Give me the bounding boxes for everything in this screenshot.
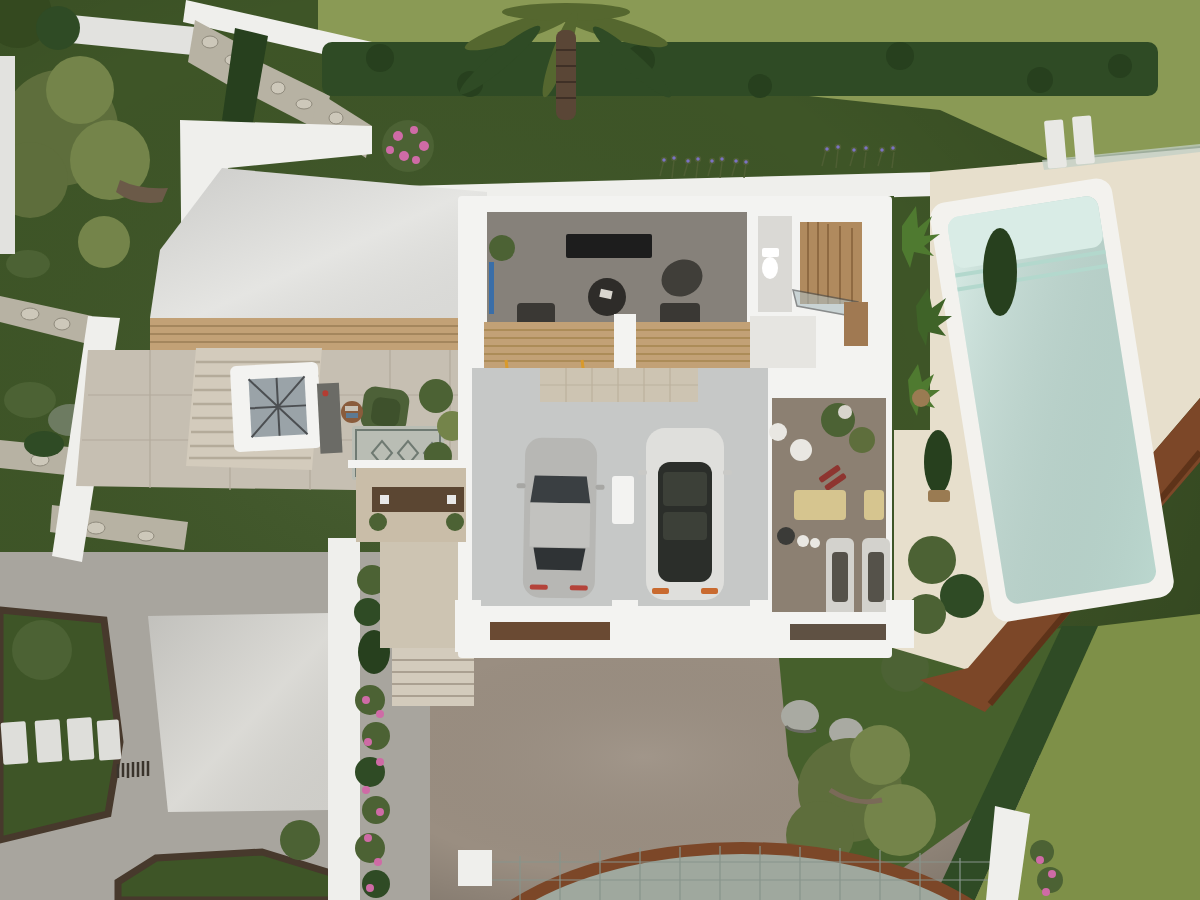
retaining-wall-edge <box>0 56 15 254</box>
garage-door-shadow <box>490 622 610 640</box>
island-bush <box>12 620 72 680</box>
taillight <box>701 588 718 594</box>
pink-flower-bush <box>382 120 434 172</box>
door-pier <box>612 600 638 652</box>
garage <box>455 368 776 652</box>
palm-trunk <box>556 30 576 120</box>
wood-cabinet <box>844 302 868 346</box>
taillight <box>530 584 548 589</box>
side-table <box>341 401 363 423</box>
yoga-mat <box>794 490 846 520</box>
toilet <box>762 248 779 279</box>
white-pot <box>838 405 852 419</box>
kettlebell <box>777 527 795 545</box>
rear-window <box>533 548 585 571</box>
small-ball <box>797 535 809 547</box>
wall-pier <box>614 314 636 370</box>
aerial-villa-render <box>0 0 1200 900</box>
drain-grate <box>118 761 148 778</box>
scene-canvas <box>0 0 1200 900</box>
porch-light <box>380 495 389 504</box>
glass-panel <box>663 512 707 540</box>
plant-pot <box>928 490 950 502</box>
hall-floor <box>750 316 816 368</box>
potted-plant <box>446 513 464 531</box>
potted-plant <box>369 513 387 531</box>
deck-walkway <box>150 318 486 350</box>
cypress-potted <box>924 430 952 494</box>
cypress-tall <box>983 228 1017 316</box>
blue-accent-strip <box>489 262 494 314</box>
shaft-side-panel <box>317 383 343 454</box>
small-ball <box>810 538 820 548</box>
entry-walkway <box>380 538 468 648</box>
side-mirror <box>638 470 647 475</box>
glass-panel <box>663 472 707 506</box>
exercise-ball <box>790 439 812 461</box>
porch-light <box>447 495 456 504</box>
gate-pillar-west <box>458 850 492 886</box>
windshield <box>530 475 590 503</box>
silver-sedan <box>515 437 606 599</box>
gym-opening-shadow <box>790 624 890 640</box>
garage-center-pier <box>612 476 634 524</box>
book <box>346 413 358 418</box>
porch-beam <box>348 460 470 468</box>
side-mirror <box>596 485 605 490</box>
book <box>345 406 358 411</box>
white-car-glass-roof <box>638 428 732 600</box>
corner-pier <box>886 600 914 648</box>
door-pier <box>455 600 481 652</box>
south-bush <box>280 820 320 860</box>
wall-pier <box>458 316 484 370</box>
taillight <box>652 588 669 594</box>
entry-porch <box>348 460 470 542</box>
taillight <box>570 585 588 590</box>
car-roof <box>529 502 590 547</box>
bath-sauna-block <box>750 216 868 368</box>
concrete-pad-shade <box>148 613 330 812</box>
plant-pot <box>912 389 930 407</box>
seat-cushion <box>370 396 402 428</box>
side-mirror <box>517 483 526 488</box>
exercise-ball <box>769 423 787 441</box>
side-mirror <box>723 470 732 475</box>
yoga-mat <box>864 490 884 520</box>
indoor-plant <box>489 235 515 261</box>
yellow-green-bush <box>78 216 130 268</box>
wall-tv <box>566 234 652 258</box>
